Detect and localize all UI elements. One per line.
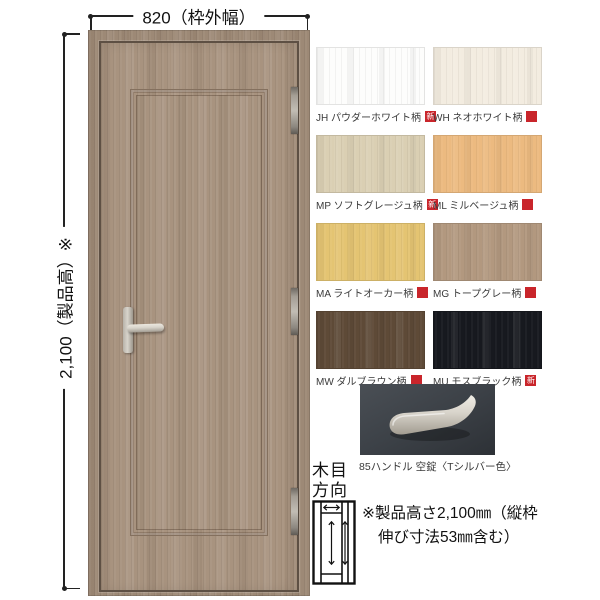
note-line2: 伸び寸法53㎜含む）: [362, 526, 538, 550]
handle-caption: 85ハンドル 空錠〈Tシルバー色〉: [359, 459, 517, 474]
grain-direction-line1: 木目: [312, 461, 348, 481]
swatch-label-text: MA ライトオーカー柄: [316, 285, 413, 300]
swatch-mg: MG トープグレー柄: [433, 223, 542, 300]
width-dimension-label: 820（枠外幅）: [133, 4, 264, 29]
swatch-label-text: JH パウダーホワイト柄: [316, 109, 421, 124]
swatch-mw: MW ダルブラウン柄: [316, 311, 425, 388]
swatch-label: MG トープグレー柄: [433, 285, 542, 300]
swatch-label: ML ミルベージュ柄: [433, 197, 542, 212]
swatch-label-text: MP ソフトグレージュ柄: [316, 197, 423, 212]
door-panel: [136, 95, 262, 530]
door-hinge: [291, 488, 298, 535]
catalog-page: 820（枠外幅） 2,100（製品高）※ JH パウダーホワイト柄 新: [0, 0, 600, 600]
swatch-chip: [433, 223, 542, 281]
height-dimension-label: 2,100（製品高）※: [50, 227, 79, 389]
swatch-chip: [433, 135, 542, 193]
product-height-note: ※製品高さ2,100㎜（縦枠 伸び寸法53㎜含む）: [362, 502, 538, 550]
color-swatch-grid: JH パウダーホワイト柄 新 WH ネオホワイト柄 MP ソフトグレージュ柄 新…: [316, 47, 542, 388]
handle-photo: [360, 384, 495, 455]
dimension-extension-tick: [66, 588, 80, 590]
door-panel-molding: [130, 89, 268, 536]
dimension-extension-tick: [307, 18, 309, 30]
new-badge: [526, 111, 537, 122]
new-badge: [522, 199, 533, 210]
swatch-chip: [433, 47, 542, 105]
swatch-label-text: ML ミルベージュ柄: [433, 197, 518, 212]
dimension-extension-tick: [66, 33, 80, 35]
swatch-label-text: WH ネオホワイト柄: [433, 109, 522, 124]
door-illustration: [88, 30, 310, 596]
swatch-ma: MA ライトオーカー柄: [316, 223, 425, 300]
swatch-chip: [316, 135, 425, 193]
door-leaf: [101, 43, 297, 590]
grain-direction-line2: 方向: [312, 481, 348, 501]
swatch-chip: [316, 311, 425, 369]
door-hinge: [291, 87, 298, 134]
swatch-label: MA ライトオーカー柄: [316, 285, 425, 300]
note-line1: ※製品高さ2,100㎜（縦枠: [362, 502, 538, 526]
grain-direction-label: 木目 方向: [312, 461, 348, 500]
swatch-label: JH パウダーホワイト柄 新: [316, 109, 425, 124]
dimension-extension-tick: [90, 18, 92, 30]
swatch-ml: ML ミルベージュ柄: [433, 135, 542, 212]
new-badge: [525, 287, 536, 298]
swatch-chip: [433, 311, 542, 369]
swatch-chip: [316, 47, 425, 105]
grain-direction-diagram: [312, 500, 356, 591]
new-badge: [417, 287, 428, 298]
door-hinge: [291, 288, 298, 335]
door-handle-lever: [127, 323, 164, 332]
swatch-wh: WH ネオホワイト柄: [433, 47, 542, 124]
swatch-label: MP ソフトグレージュ柄 新: [316, 197, 425, 212]
new-badge: 新: [525, 375, 536, 386]
swatch-jh: JH パウダーホワイト柄 新: [316, 47, 425, 124]
swatch-label: WH ネオホワイト柄: [433, 109, 542, 124]
swatch-mp: MP ソフトグレージュ柄 新: [316, 135, 425, 212]
swatch-label-text: MG トープグレー柄: [433, 285, 521, 300]
swatch-chip: [316, 223, 425, 281]
swatch-mu: MU モスブラック柄 新: [433, 311, 542, 388]
handle-photo-image: [360, 384, 495, 455]
